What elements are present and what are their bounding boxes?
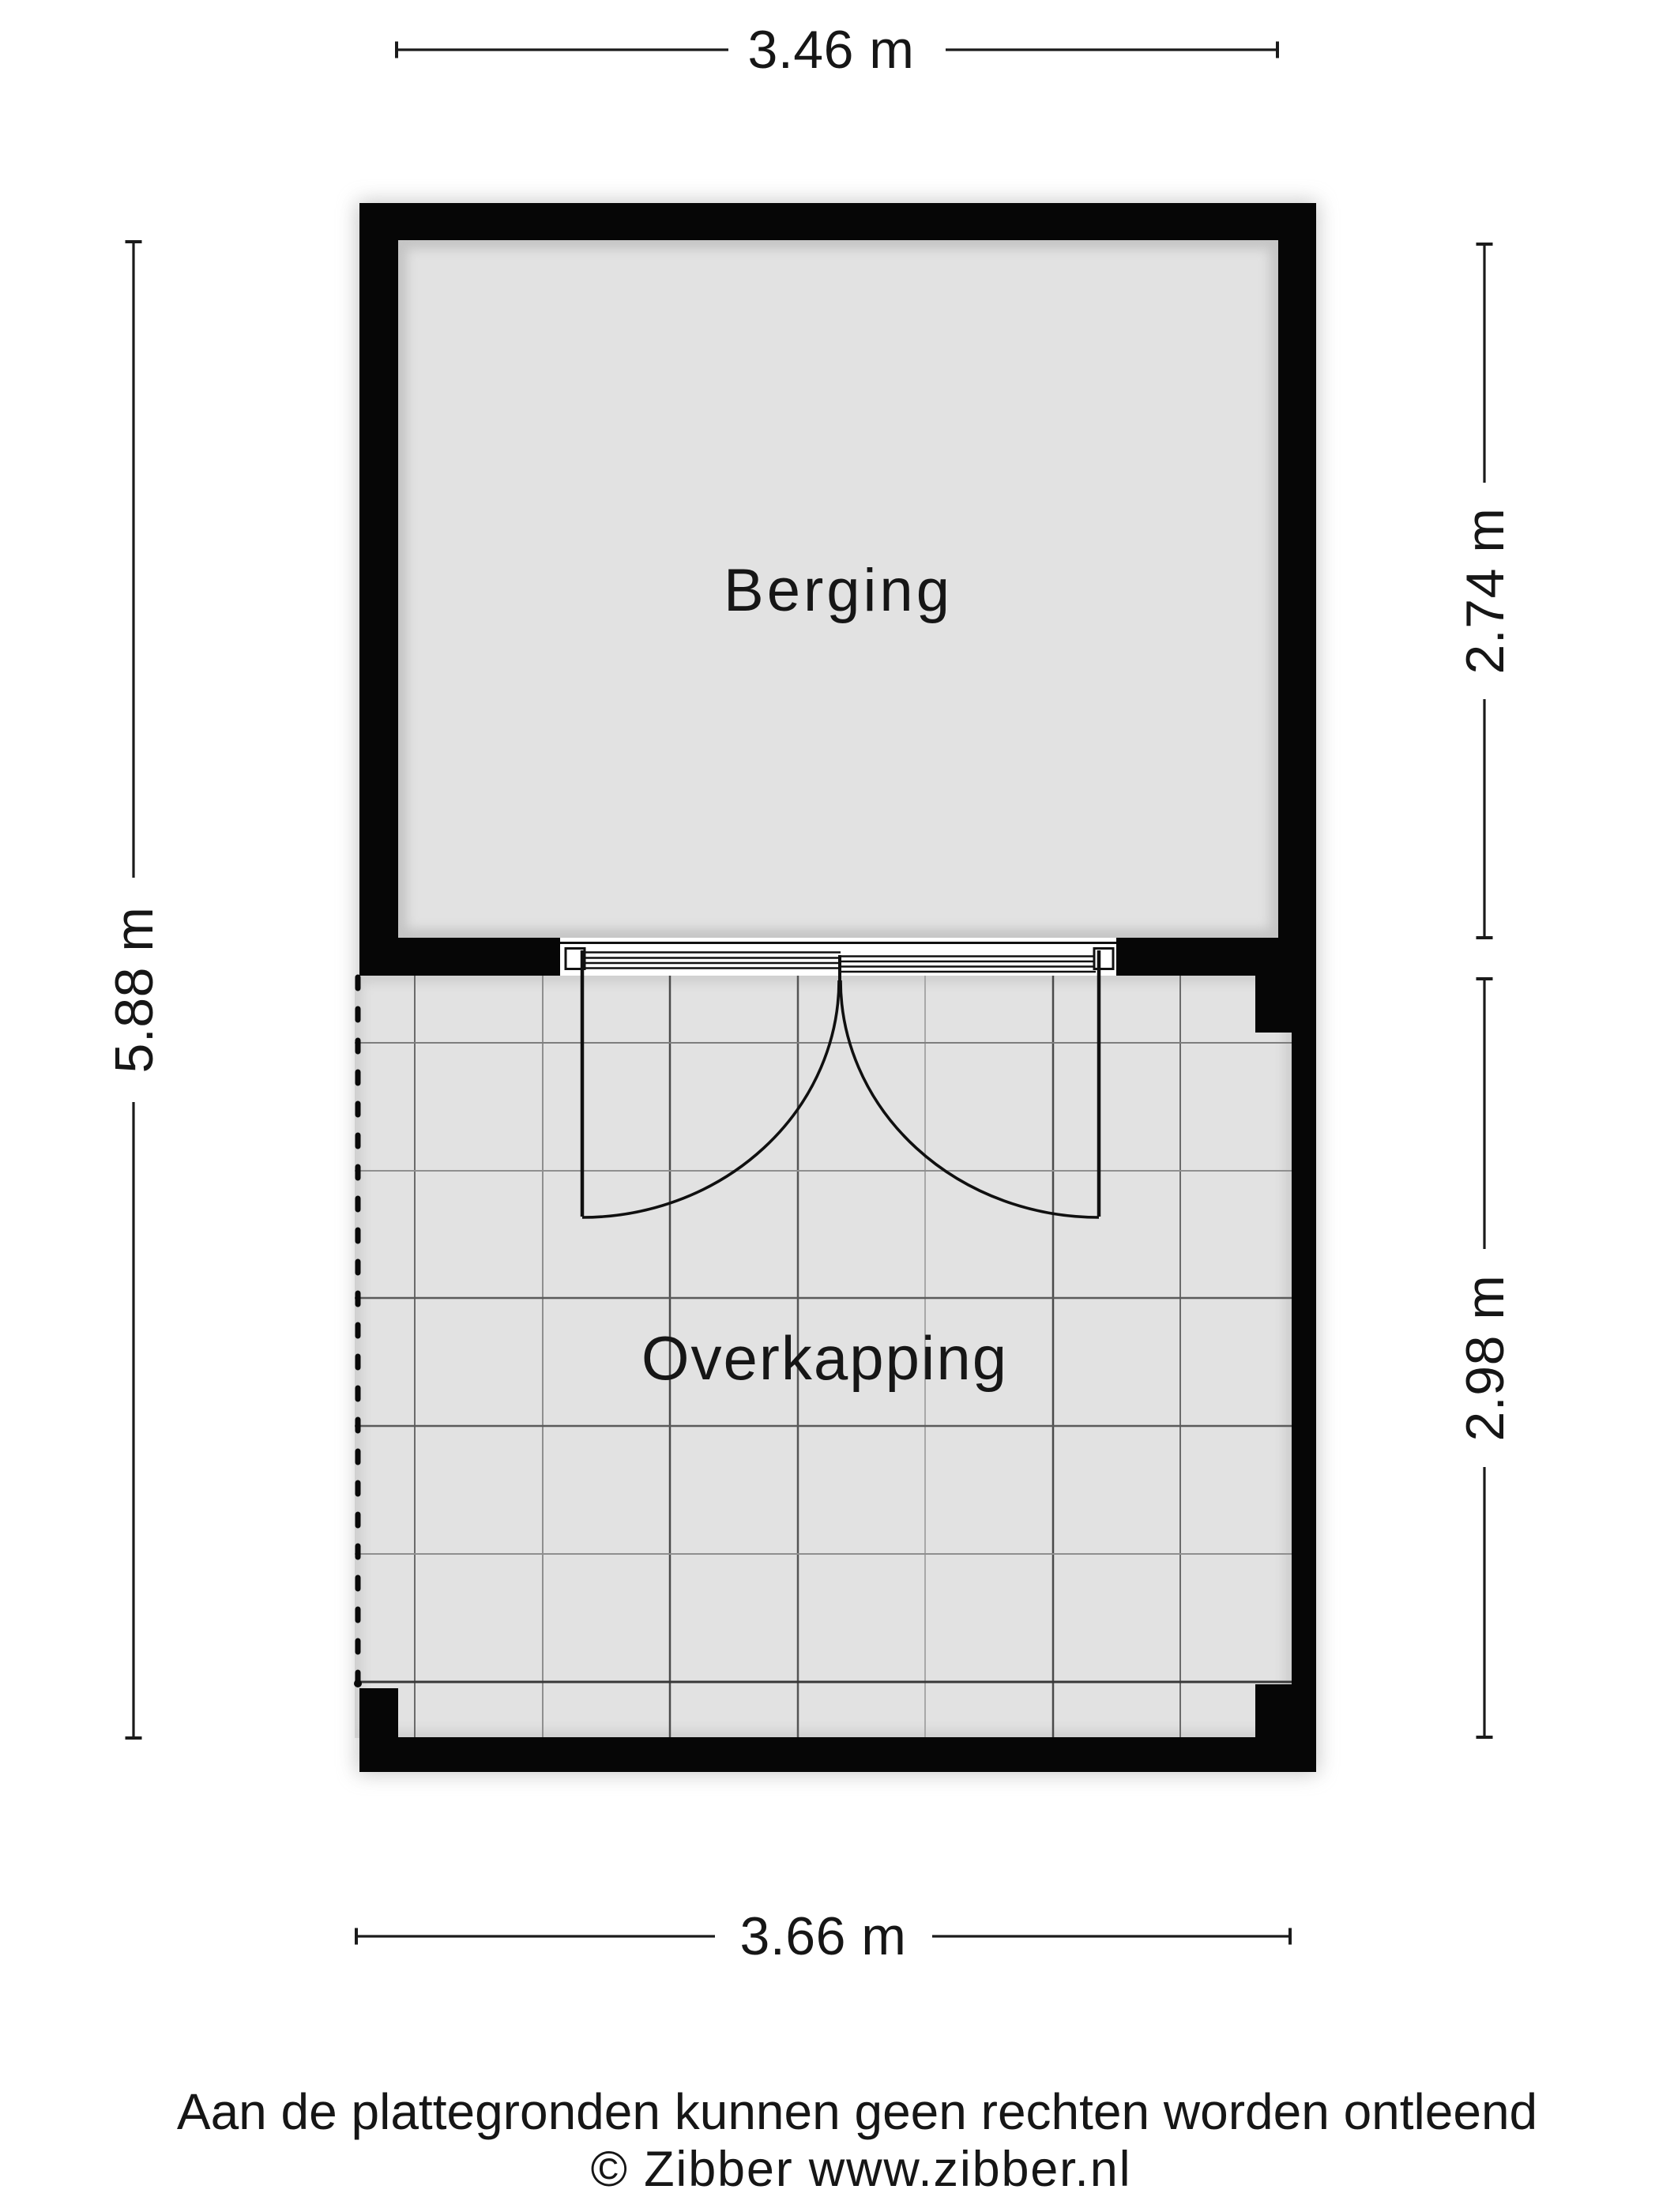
svg-text:Aan de plattegronden kunnen ge: Aan de plattegronden kunnen geen rechten… xyxy=(177,2083,1537,2140)
svg-text:© Zibber www.zibber.nl: © Zibber www.zibber.nl xyxy=(591,2142,1132,2197)
svg-text:Berging: Berging xyxy=(724,557,953,624)
svg-text:5.88 m: 5.88 m xyxy=(104,907,164,1074)
svg-text:2.98 m: 2.98 m xyxy=(1455,1275,1515,1442)
svg-text:3.66 m: 3.66 m xyxy=(740,1906,907,1966)
svg-text:2.74 m: 2.74 m xyxy=(1455,508,1515,675)
svg-text:Overkapping: Overkapping xyxy=(641,1323,1008,1393)
svg-text:3.46 m: 3.46 m xyxy=(748,20,915,80)
